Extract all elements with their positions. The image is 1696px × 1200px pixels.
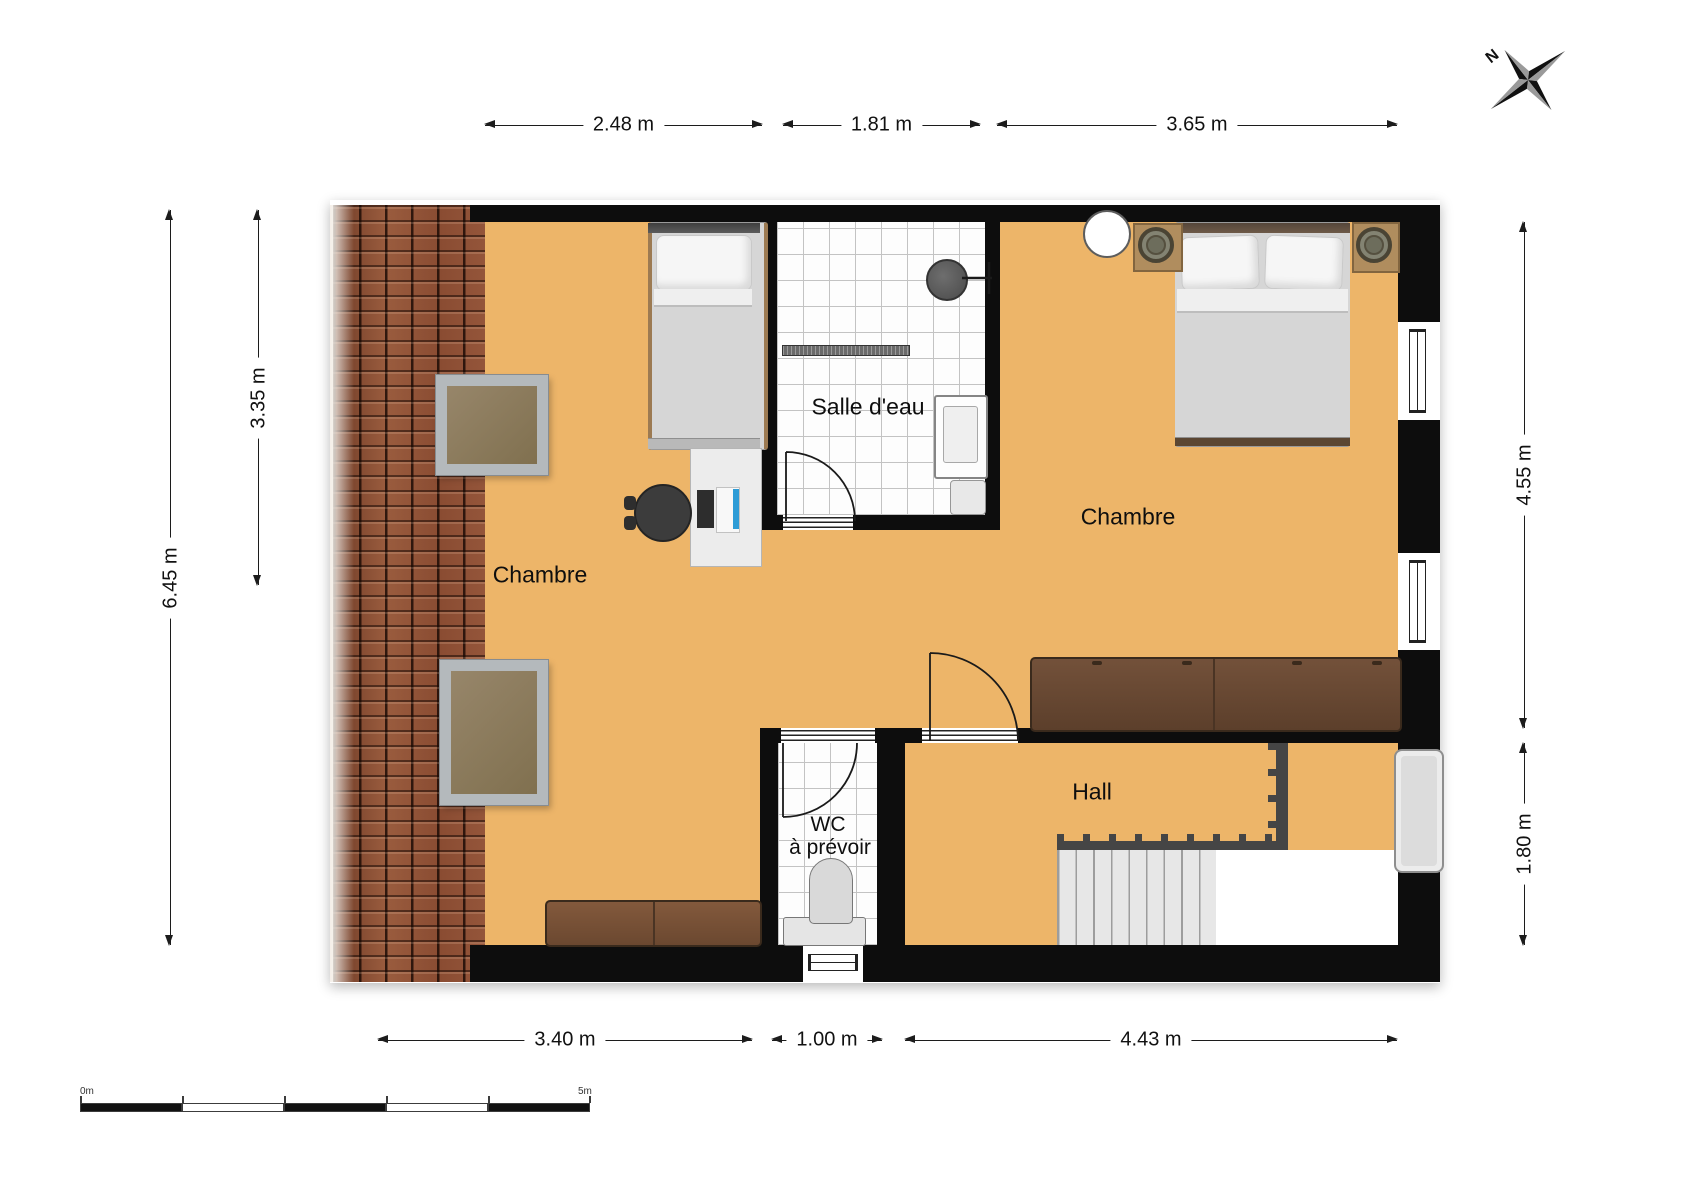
scale-bar-segment (80, 1103, 182, 1112)
room-label-wc-line1: WC (811, 813, 846, 837)
room-label-chambre-right: Chambre (1081, 504, 1176, 531)
dimension-bottom-1: 3.40 m (378, 1040, 752, 1041)
shower-arm-icon (962, 262, 992, 294)
scale-bar-tick (80, 1096, 82, 1103)
scale-bar-start-label: 0m (80, 1086, 94, 1097)
dimension-top-2: 1.81 m (783, 125, 980, 126)
dimension-label: 3.40 m (524, 1029, 605, 1052)
room-label-hall: Hall (1072, 779, 1112, 806)
hall-door-swing (930, 653, 1018, 741)
dimension-label: 3.65 m (1156, 114, 1237, 137)
dimension-label: 3.35 m (248, 357, 271, 438)
room-label-wc-line2: à prévoir (789, 836, 871, 860)
room-label-chambre-left: Chambre (493, 562, 588, 589)
dimension-label: 4.43 m (1110, 1029, 1191, 1052)
room-label-salle-deau: Salle d'eau (811, 394, 924, 421)
dimension-right-upper: 4.55 m (1524, 222, 1525, 728)
scale-bar-tick (284, 1096, 286, 1103)
dimension-label: 6.45 m (160, 537, 183, 618)
dimension-label: 1.00 m (786, 1029, 867, 1052)
dimension-label: 4.55 m (1514, 434, 1537, 515)
dimension-left-outer: 6.45 m (170, 210, 171, 945)
scale-bar-tick (386, 1096, 388, 1103)
dimension-label: 1.81 m (841, 114, 922, 137)
dimension-top-3: 3.65 m (997, 125, 1397, 126)
scale-bar-tick (488, 1096, 490, 1103)
floor-plan-canvas: Chambre Salle d'eau Chambre Hall WC à pr… (0, 0, 1696, 1200)
bathroom-door-swing (786, 452, 855, 521)
dimension-label: 2.48 m (583, 114, 664, 137)
dimension-right-lower: 1.80 m (1524, 743, 1525, 945)
compass-rose-icon (1478, 30, 1578, 130)
scale-bar-tick (182, 1096, 184, 1103)
scale-bar-segment (182, 1103, 284, 1112)
door-swings-overlay (330, 200, 1440, 983)
dimension-bottom-3: 4.43 m (905, 1040, 1397, 1041)
dimension-left-inner: 3.35 m (258, 210, 259, 585)
scale-bar-segment (488, 1103, 590, 1112)
scale-bar-segment (386, 1103, 488, 1112)
dimension-label: 1.80 m (1514, 803, 1537, 884)
dimension-bottom-2: 1.00 m (772, 1040, 882, 1041)
scale-bar-tick (589, 1096, 591, 1103)
wc-door-swing (783, 743, 857, 817)
dimension-top-1: 2.48 m (485, 125, 762, 126)
scale-bar-segment (284, 1103, 386, 1112)
